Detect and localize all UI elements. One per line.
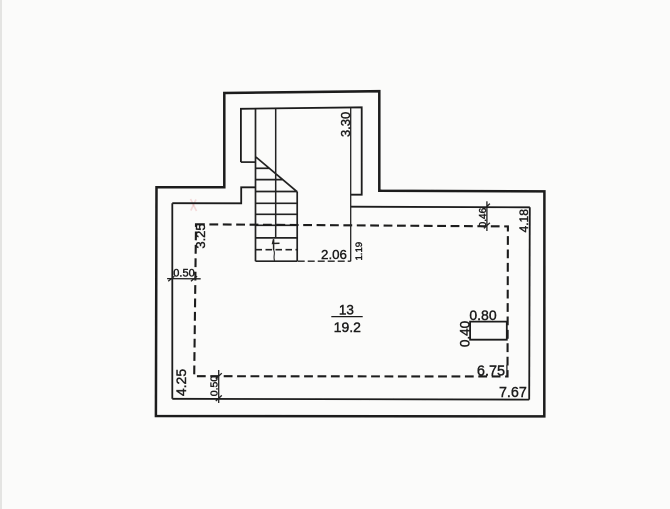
svg-text:0.50: 0.50	[208, 376, 220, 397]
svg-text:0.50: 0.50	[173, 267, 194, 279]
svg-text:2.06: 2.06	[321, 247, 347, 262]
svg-text:0.80: 0.80	[469, 307, 496, 323]
svg-text:7.67: 7.67	[499, 385, 527, 401]
svg-text:0.40: 0.40	[457, 321, 472, 347]
svg-text:3.25: 3.25	[193, 223, 208, 248]
svg-text:0.46: 0.46	[478, 207, 489, 227]
svg-text:19.2: 19.2	[334, 319, 361, 335]
svg-text:6.75: 6.75	[477, 364, 505, 380]
svg-text:13: 13	[339, 302, 354, 317]
svg-text:4.25: 4.25	[173, 369, 189, 396]
svg-text:1.19: 1.19	[354, 242, 365, 261]
svg-text:4.18: 4.18	[517, 209, 531, 233]
svg-text:3.30: 3.30	[338, 112, 353, 137]
